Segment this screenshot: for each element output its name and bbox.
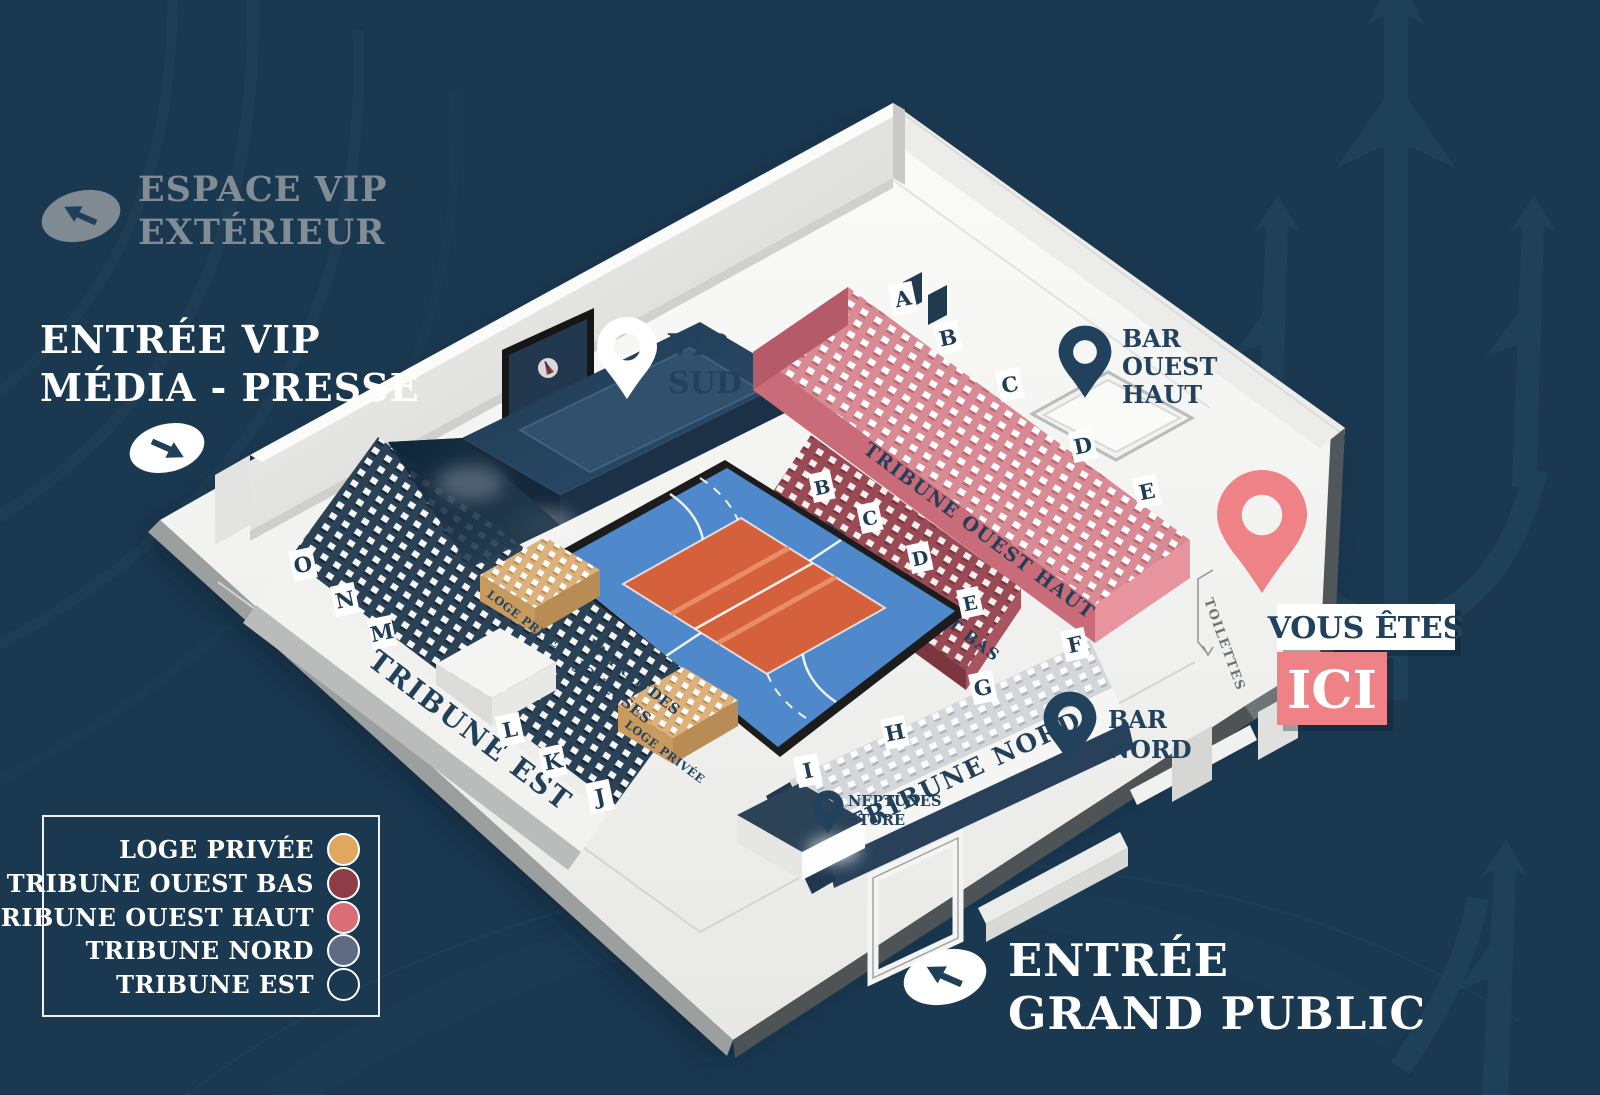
legend-swatch-tribune-ouest-haut: [327, 901, 360, 934]
legend-swatch-loge-privee: [327, 833, 360, 866]
bar-nord-label-2: NORD: [1108, 735, 1192, 764]
bar-ouest-haut-label-1: BAR: [1122, 324, 1182, 353]
legend-row-tribune-nord: TRIBUNE NORD: [56, 934, 360, 967]
entree-grand-public-line1: ENTRÉE: [1008, 934, 1426, 987]
arrow-up-left-icon: [918, 953, 972, 1001]
arrow-up-left-icon: [57, 194, 106, 237]
vip-sud-label-2: SUD: [668, 366, 742, 401]
arena-map-poster: TRIBUNE OUEST HAUT TRIBUNE OUEST BAS: [0, 0, 1600, 1095]
legend-row-tribune-ouest-bas: TRIBUNE OUEST BAS: [56, 867, 360, 900]
bar-ouest-haut-label-3: HAUT: [1122, 380, 1202, 409]
legend-label: TRIBUNE NORD: [86, 936, 314, 965]
you-are-here-ici-label: ICI: [1287, 660, 1377, 721]
legend-label: TRIBUNE EST: [116, 970, 314, 999]
legend-label: TRIBUNE OUEST BAS: [7, 869, 314, 898]
legend-swatch-tribune-ouest-bas: [327, 867, 360, 900]
bar-nord-label-1: BAR: [1108, 705, 1168, 734]
legend-row-tribune-est: TRIBUNE EST: [56, 968, 360, 1001]
legend: LOGE PRIVÉE TRIBUNE OUEST BAS TRIBUNE OU…: [42, 815, 380, 1017]
legend-label: TRIBUNE OUEST HAUT: [0, 903, 314, 932]
entree-vip-media-presse-label: ENTRÉE VIP MÉDIA - PRESSE: [40, 316, 420, 412]
legend-swatch-tribune-est: [327, 968, 360, 1001]
legend-swatch-tribune-nord: [327, 934, 360, 967]
you-are-here-label: VOUS ÊTES: [1267, 610, 1465, 646]
espace-vip-line2: EXTÉRIEUR: [138, 211, 387, 254]
entree-grand-public-label: ENTRÉE GRAND PUBLIC: [1008, 934, 1426, 1040]
entree-vip-line1: ENTRÉE VIP: [40, 316, 420, 364]
legend-label: LOGE PRIVÉE: [119, 835, 314, 864]
espace-vip-exterieur-label: ESPACE VIP EXTÉRIEUR: [138, 168, 387, 255]
espace-vip-line1: ESPACE VIP: [138, 168, 387, 211]
vip-sud-label-1: VIP: [667, 328, 728, 363]
arrow-down-right-icon: [143, 426, 192, 469]
neptunes-store-label-1: NEPTUNES: [848, 793, 941, 810]
entree-grand-public-line2: GRAND PUBLIC: [1008, 987, 1426, 1040]
legend-row-loge-privee: LOGE PRIVÉE: [56, 833, 360, 866]
neptunes-store-label-2: STORE: [848, 812, 905, 829]
legend-row-tribune-ouest-haut: TRIBUNE OUEST HAUT: [56, 901, 360, 934]
entree-vip-line2: MÉDIA - PRESSE: [40, 364, 420, 412]
bar-ouest-haut-label-2: OUEST: [1122, 352, 1217, 381]
